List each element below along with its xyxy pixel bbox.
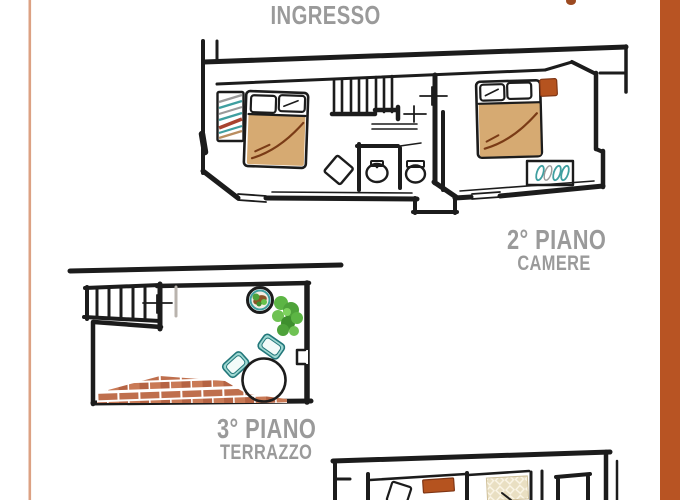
shelf-icon bbox=[527, 161, 573, 185]
orange-cabinet-icon bbox=[423, 478, 455, 493]
potted-plant-icon bbox=[248, 288, 273, 313]
floor2-stairs bbox=[332, 76, 417, 129]
right-edge-bar bbox=[660, 0, 680, 500]
left-edge-line bbox=[29, 0, 32, 500]
plant-icon bbox=[272, 296, 303, 336]
floor1-partial-plan bbox=[333, 452, 617, 500]
floor3-window-cross bbox=[143, 295, 172, 313]
sink-icon bbox=[367, 161, 388, 182]
top-edge-dot bbox=[566, 0, 576, 5]
toilet-icon bbox=[406, 161, 425, 183]
floor3-plan bbox=[70, 265, 341, 404]
bathroom bbox=[357, 143, 425, 190]
nightstand-icon bbox=[540, 79, 558, 97]
wall-notch bbox=[297, 350, 308, 364]
floor3-stairs bbox=[97, 286, 145, 320]
floorplan-page: INGRESSO 2° PIANO CAMERE 3° PIANO TERRAZ… bbox=[0, 0, 700, 500]
chair-icon bbox=[221, 350, 250, 379]
floor3-subtitle: TERRAZZO bbox=[186, 442, 346, 463]
floor3-title: 3° PIANO bbox=[187, 415, 347, 443]
brick-floor bbox=[97, 376, 287, 403]
floor1-walls bbox=[333, 452, 617, 500]
chair-square-icon bbox=[324, 155, 354, 185]
chair-icon bbox=[257, 333, 286, 361]
wardrobe-icon bbox=[218, 92, 244, 141]
floor2-title: 2° PIANO bbox=[477, 226, 637, 254]
bed1-icon bbox=[244, 91, 309, 168]
round-table-icon bbox=[243, 359, 286, 402]
entrance-label: INGRESSO bbox=[246, 2, 406, 28]
chair-square-icon bbox=[386, 481, 411, 500]
floor2-window-crosses bbox=[404, 87, 447, 122]
bed2-icon bbox=[476, 80, 542, 158]
floor2-subtitle: CAMERE bbox=[474, 253, 634, 274]
floor2-plan bbox=[202, 41, 626, 213]
